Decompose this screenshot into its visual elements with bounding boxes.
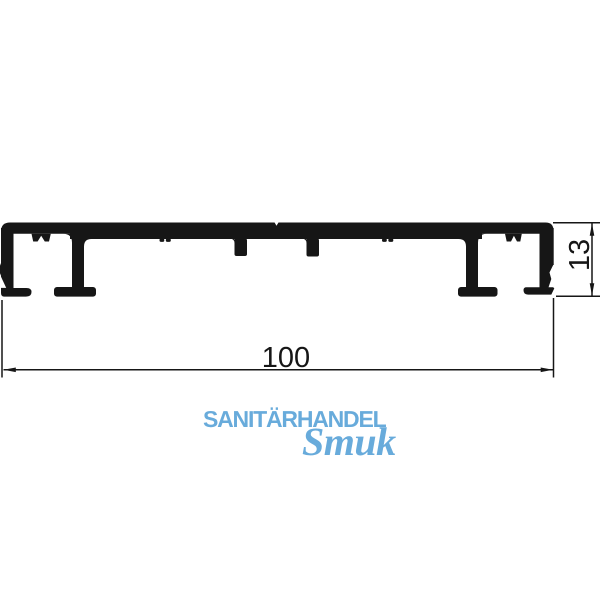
svg-text:100: 100 (262, 342, 310, 374)
svg-text:Smuk: Smuk (302, 419, 396, 464)
svg-text:13: 13 (564, 239, 596, 271)
